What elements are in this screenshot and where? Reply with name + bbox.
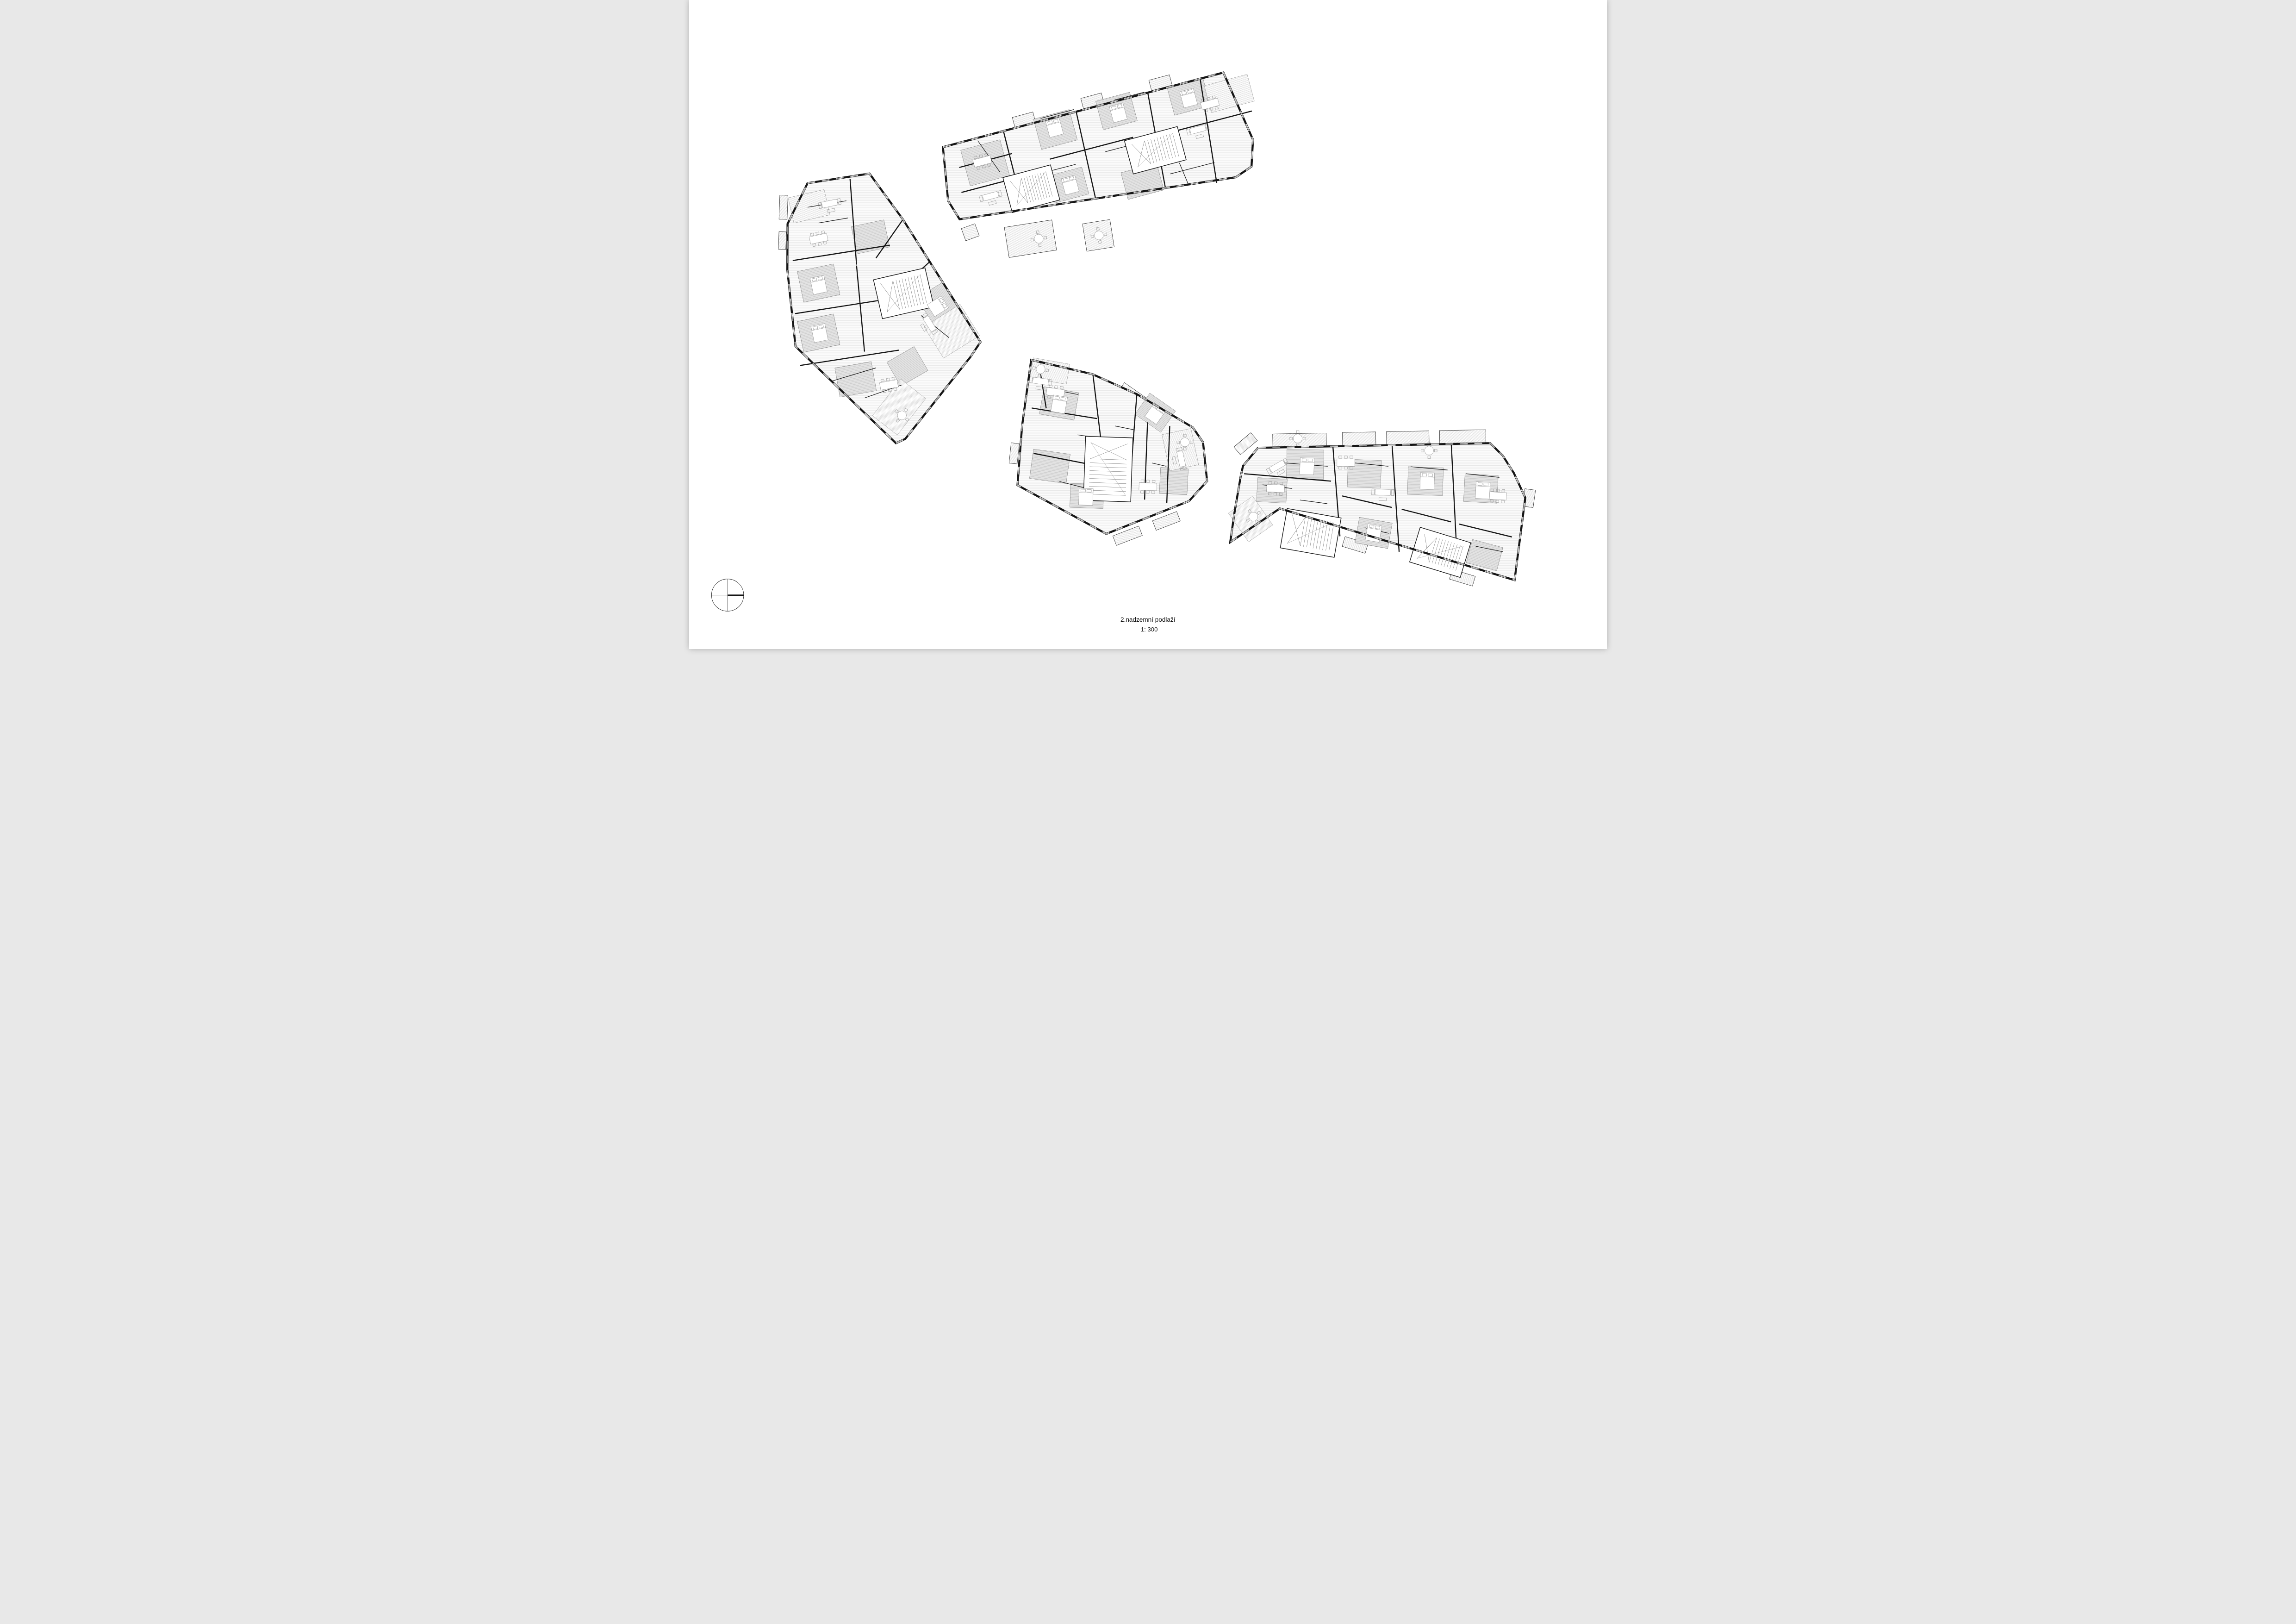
bed <box>1079 488 1094 506</box>
bed <box>1475 481 1490 499</box>
drawing-sheet: 2.nadzemní podlaží 1: 300 <box>689 0 1607 649</box>
balcony <box>1004 220 1057 257</box>
balcony <box>961 224 979 241</box>
building-north-plan <box>943 73 1254 258</box>
building-west-plan <box>778 174 981 443</box>
drawing-scale: 1: 300 <box>1141 626 1158 633</box>
compass-east-bar <box>728 594 744 596</box>
balcony <box>778 231 786 250</box>
bed <box>1300 458 1314 475</box>
buildings-layer <box>778 73 1536 586</box>
room <box>1159 468 1188 495</box>
balcony <box>779 195 788 219</box>
floor-plan-canvas: 2.nadzemní podlaží 1: 300 <box>689 0 1607 649</box>
north-arrow-compass <box>711 579 744 612</box>
drawing-title: 2.nadzemní podlaží <box>1120 616 1176 623</box>
bed <box>1420 473 1435 490</box>
room <box>835 362 877 397</box>
bed <box>1051 395 1067 414</box>
building-south-plan <box>1009 358 1207 545</box>
page: 2.nadzemní podlaží 1: 300 <box>0 0 2296 649</box>
balcony <box>1009 443 1019 464</box>
building-east-plan <box>1228 430 1536 586</box>
